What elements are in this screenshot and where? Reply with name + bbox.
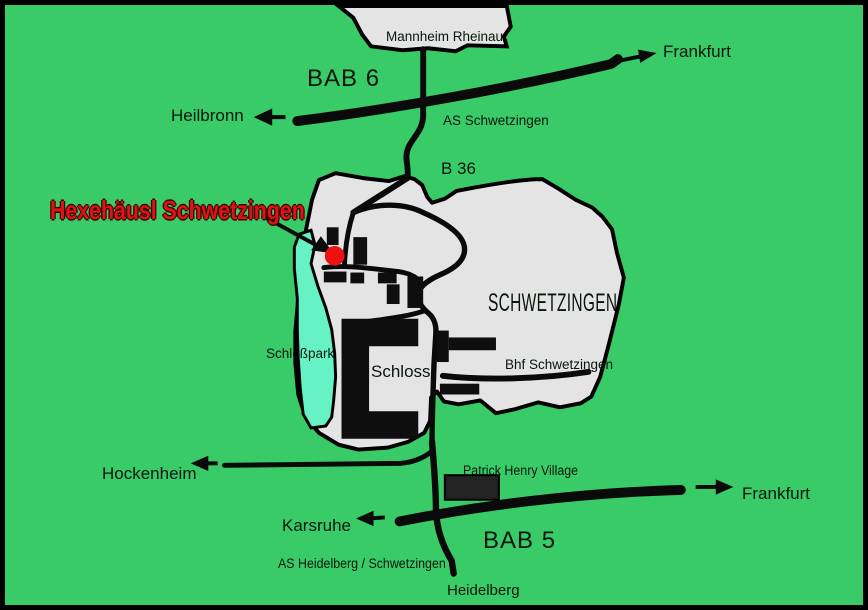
building xyxy=(324,272,347,283)
label-patrick-henry-village: Patrick Henry Village xyxy=(463,464,578,479)
label-frankfurt-south: Frankfurt xyxy=(742,485,810,504)
arrow-up-right-icon xyxy=(639,50,656,62)
building xyxy=(327,227,339,245)
building xyxy=(407,276,423,307)
label-b36: B 36 xyxy=(441,160,476,179)
label-heidelberg: Heidelberg xyxy=(447,583,520,600)
arrow-left-icon xyxy=(357,512,373,526)
road-station-south xyxy=(432,332,436,442)
building xyxy=(378,273,397,284)
label-schloss: Schloss xyxy=(371,363,431,382)
label-bab5: BAB 5 xyxy=(483,528,556,554)
label-destination: Hexehäusl Schwetzingen xyxy=(50,196,305,225)
road-bab5 xyxy=(400,490,681,521)
building xyxy=(350,273,364,284)
arrow-left-icon xyxy=(255,109,272,125)
label-bhf-schwetzingen: Bhf Schwetzingen xyxy=(505,358,613,373)
label-as-heidelberg: AS Heidelberg / Schwetzingen xyxy=(278,557,446,572)
label-city: SCHWETZINGEN xyxy=(488,290,617,318)
station-symbol xyxy=(449,337,496,350)
label-schlosspark: Schloßpark xyxy=(266,347,334,362)
road-hockenheim xyxy=(224,451,433,466)
road-b36-north xyxy=(406,49,423,178)
building xyxy=(387,284,400,304)
building xyxy=(353,237,367,265)
patrick-henry-village-block xyxy=(445,475,499,500)
label-karsruhe: Karsruhe xyxy=(282,517,351,536)
destination-marker xyxy=(325,246,345,266)
station-platform xyxy=(440,384,479,395)
route-map: Mannheim Rheinau BAB 6 Frankfurt Heilbro… xyxy=(0,0,868,610)
label-as-schwetzingen: AS Schwetzingen xyxy=(443,114,549,129)
label-heilbronn: Heilbronn xyxy=(171,107,244,126)
label-mannheim-rheinau: Mannheim Rheinau xyxy=(386,30,503,45)
label-hockenheim: Hockenheim xyxy=(102,465,197,484)
arrow-right-icon xyxy=(716,480,732,494)
map-canvas xyxy=(5,5,863,605)
label-bab6: BAB 6 xyxy=(307,66,380,92)
station-symbol xyxy=(437,331,449,362)
label-frankfurt-north: Frankfurt xyxy=(663,43,731,62)
